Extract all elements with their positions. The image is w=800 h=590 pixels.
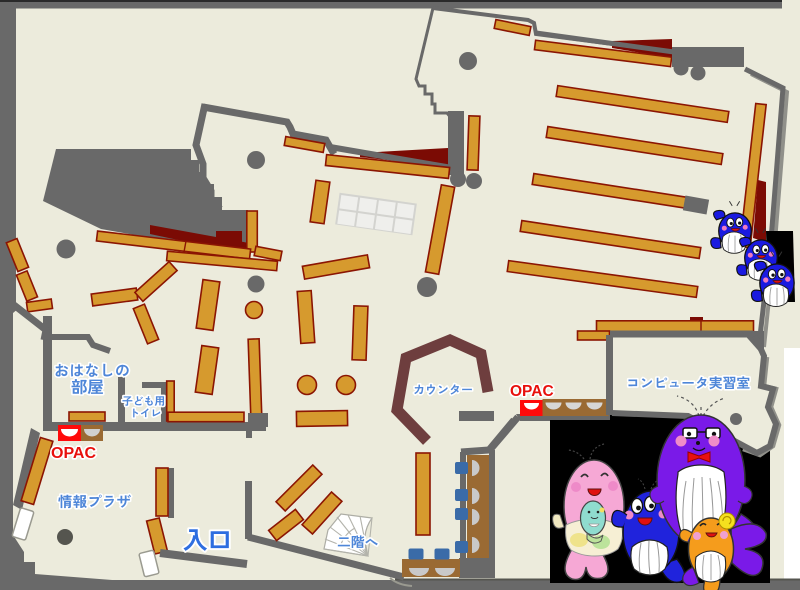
svg-text:OPAC: OPAC [510, 383, 554, 400]
svg-text:OPAC: OPAC [51, 445, 96, 462]
